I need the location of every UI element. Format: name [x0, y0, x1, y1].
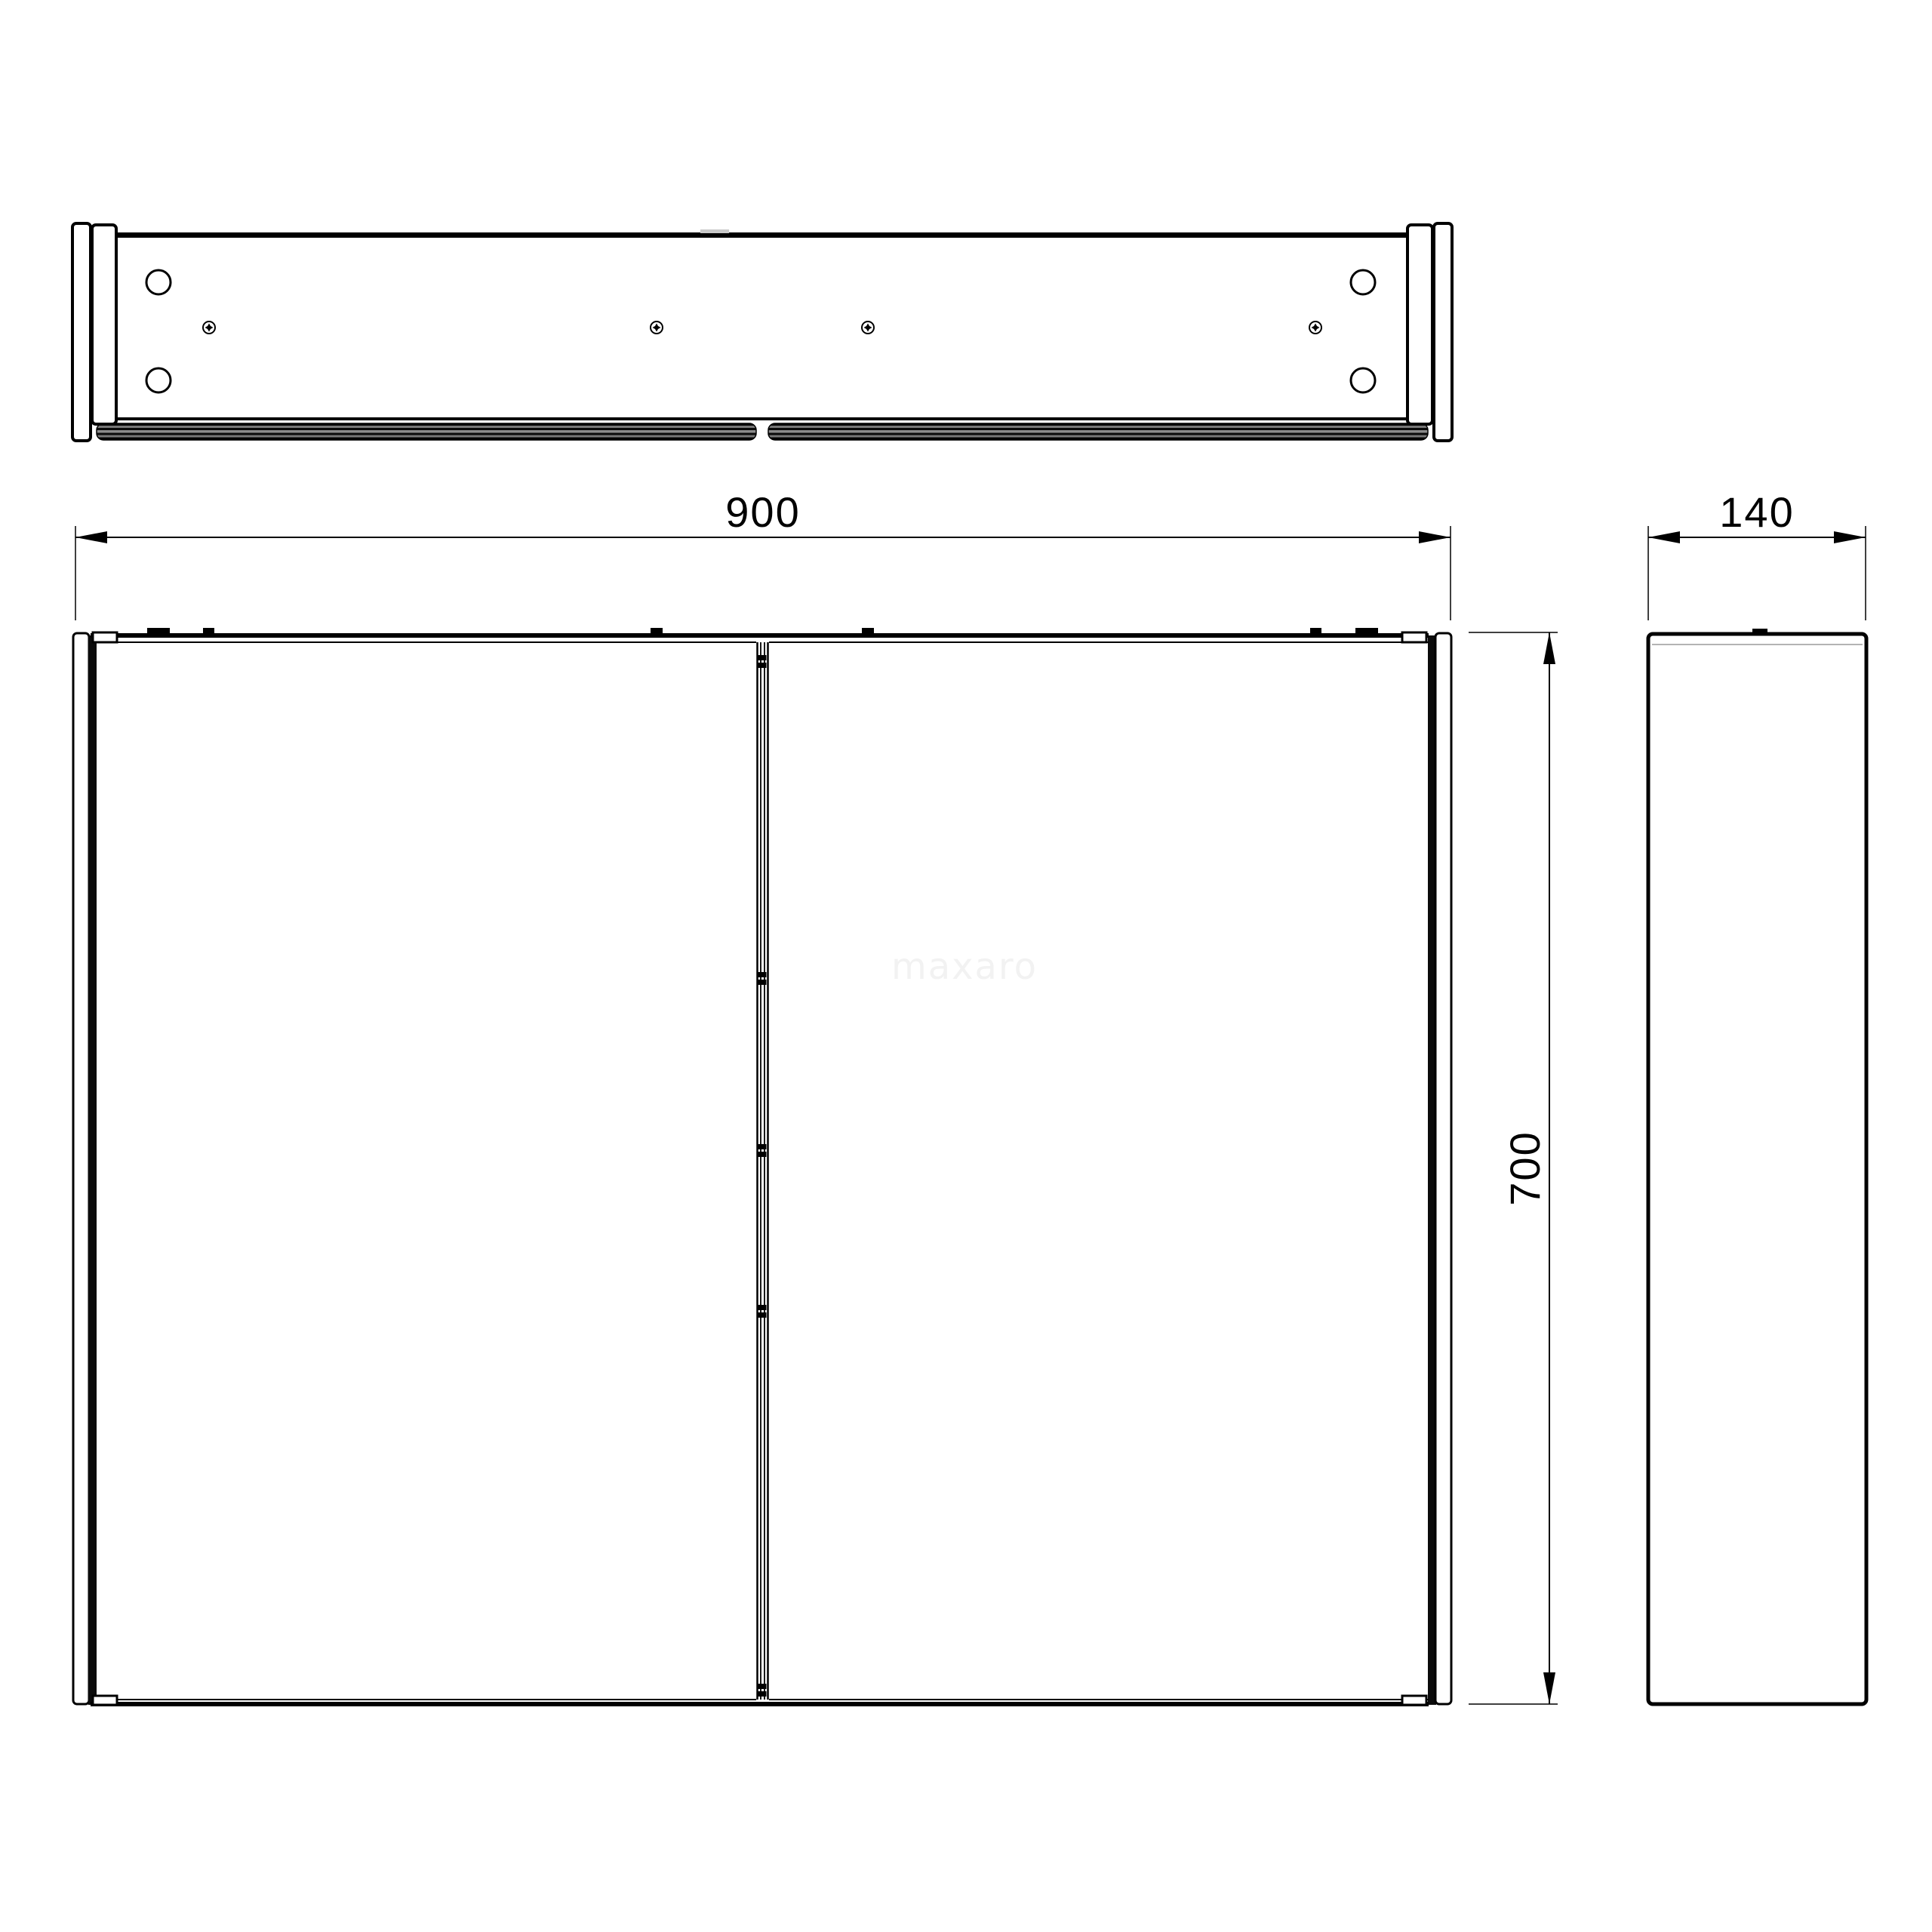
- front-bottom-cap-right: [1402, 1696, 1426, 1705]
- front-top-cap-right: [1402, 632, 1426, 642]
- watermark-text: maxaro: [891, 946, 1038, 988]
- front-view: maxaro: [73, 628, 1451, 1705]
- screw-tick-icon: [203, 628, 214, 633]
- dim-height-label: 700: [1501, 1131, 1549, 1205]
- screw-tick-icon: [862, 628, 874, 633]
- side-view-body: [1648, 634, 1866, 1704]
- dimension-width: 900: [75, 488, 1451, 620]
- front-right-side-panel: [1435, 633, 1451, 1704]
- mounting-hole: [146, 368, 171, 392]
- top-view-right-side-panel-inner: [1407, 225, 1432, 424]
- front-bottom-cap-left: [93, 1696, 117, 1705]
- arrowhead-down-icon: [1543, 1672, 1555, 1704]
- front-left-side-panel: [73, 633, 89, 1704]
- top-view-left-mirror-door-edge: [97, 423, 756, 440]
- arrowhead-left-icon: [75, 531, 107, 543]
- bracket-tick-icon: [147, 628, 170, 633]
- top-view-left-side-panel-inner: [92, 225, 116, 424]
- dim-width-label: 900: [725, 488, 800, 536]
- front-left-door-edge: [88, 635, 97, 1705]
- mounting-hole: [1351, 270, 1375, 294]
- arrowhead-up-icon: [1543, 632, 1555, 664]
- top-view: [72, 223, 1452, 441]
- top-view-hinge-mark: [700, 229, 729, 233]
- arrowhead-left-icon: [1648, 531, 1680, 543]
- arrowhead-right-icon: [1834, 531, 1866, 543]
- mounting-hole: [1351, 368, 1375, 392]
- mounting-hole: [146, 270, 171, 294]
- dimension-depth: 140: [1648, 488, 1866, 620]
- dim-depth-label: 140: [1719, 488, 1794, 536]
- arrowhead-right-icon: [1419, 531, 1451, 543]
- top-view-left-side-panel-outer: [72, 223, 91, 441]
- side-view: [1648, 629, 1866, 1704]
- technical-drawing-page: 900 140: [0, 0, 1932, 1932]
- bracket-tick-icon: [1355, 628, 1378, 633]
- side-view-bracket-tick-icon: [1752, 629, 1767, 635]
- top-view-right-side-panel-outer: [1434, 223, 1452, 441]
- screw-tick-icon: [1310, 628, 1321, 633]
- screw-tick-icon: [651, 628, 663, 633]
- dimension-height: 700: [1469, 632, 1558, 1704]
- top-view-carcass: [116, 234, 1407, 419]
- front-top-cap-left: [93, 632, 117, 642]
- top-view-right-mirror-door-edge: [768, 423, 1428, 440]
